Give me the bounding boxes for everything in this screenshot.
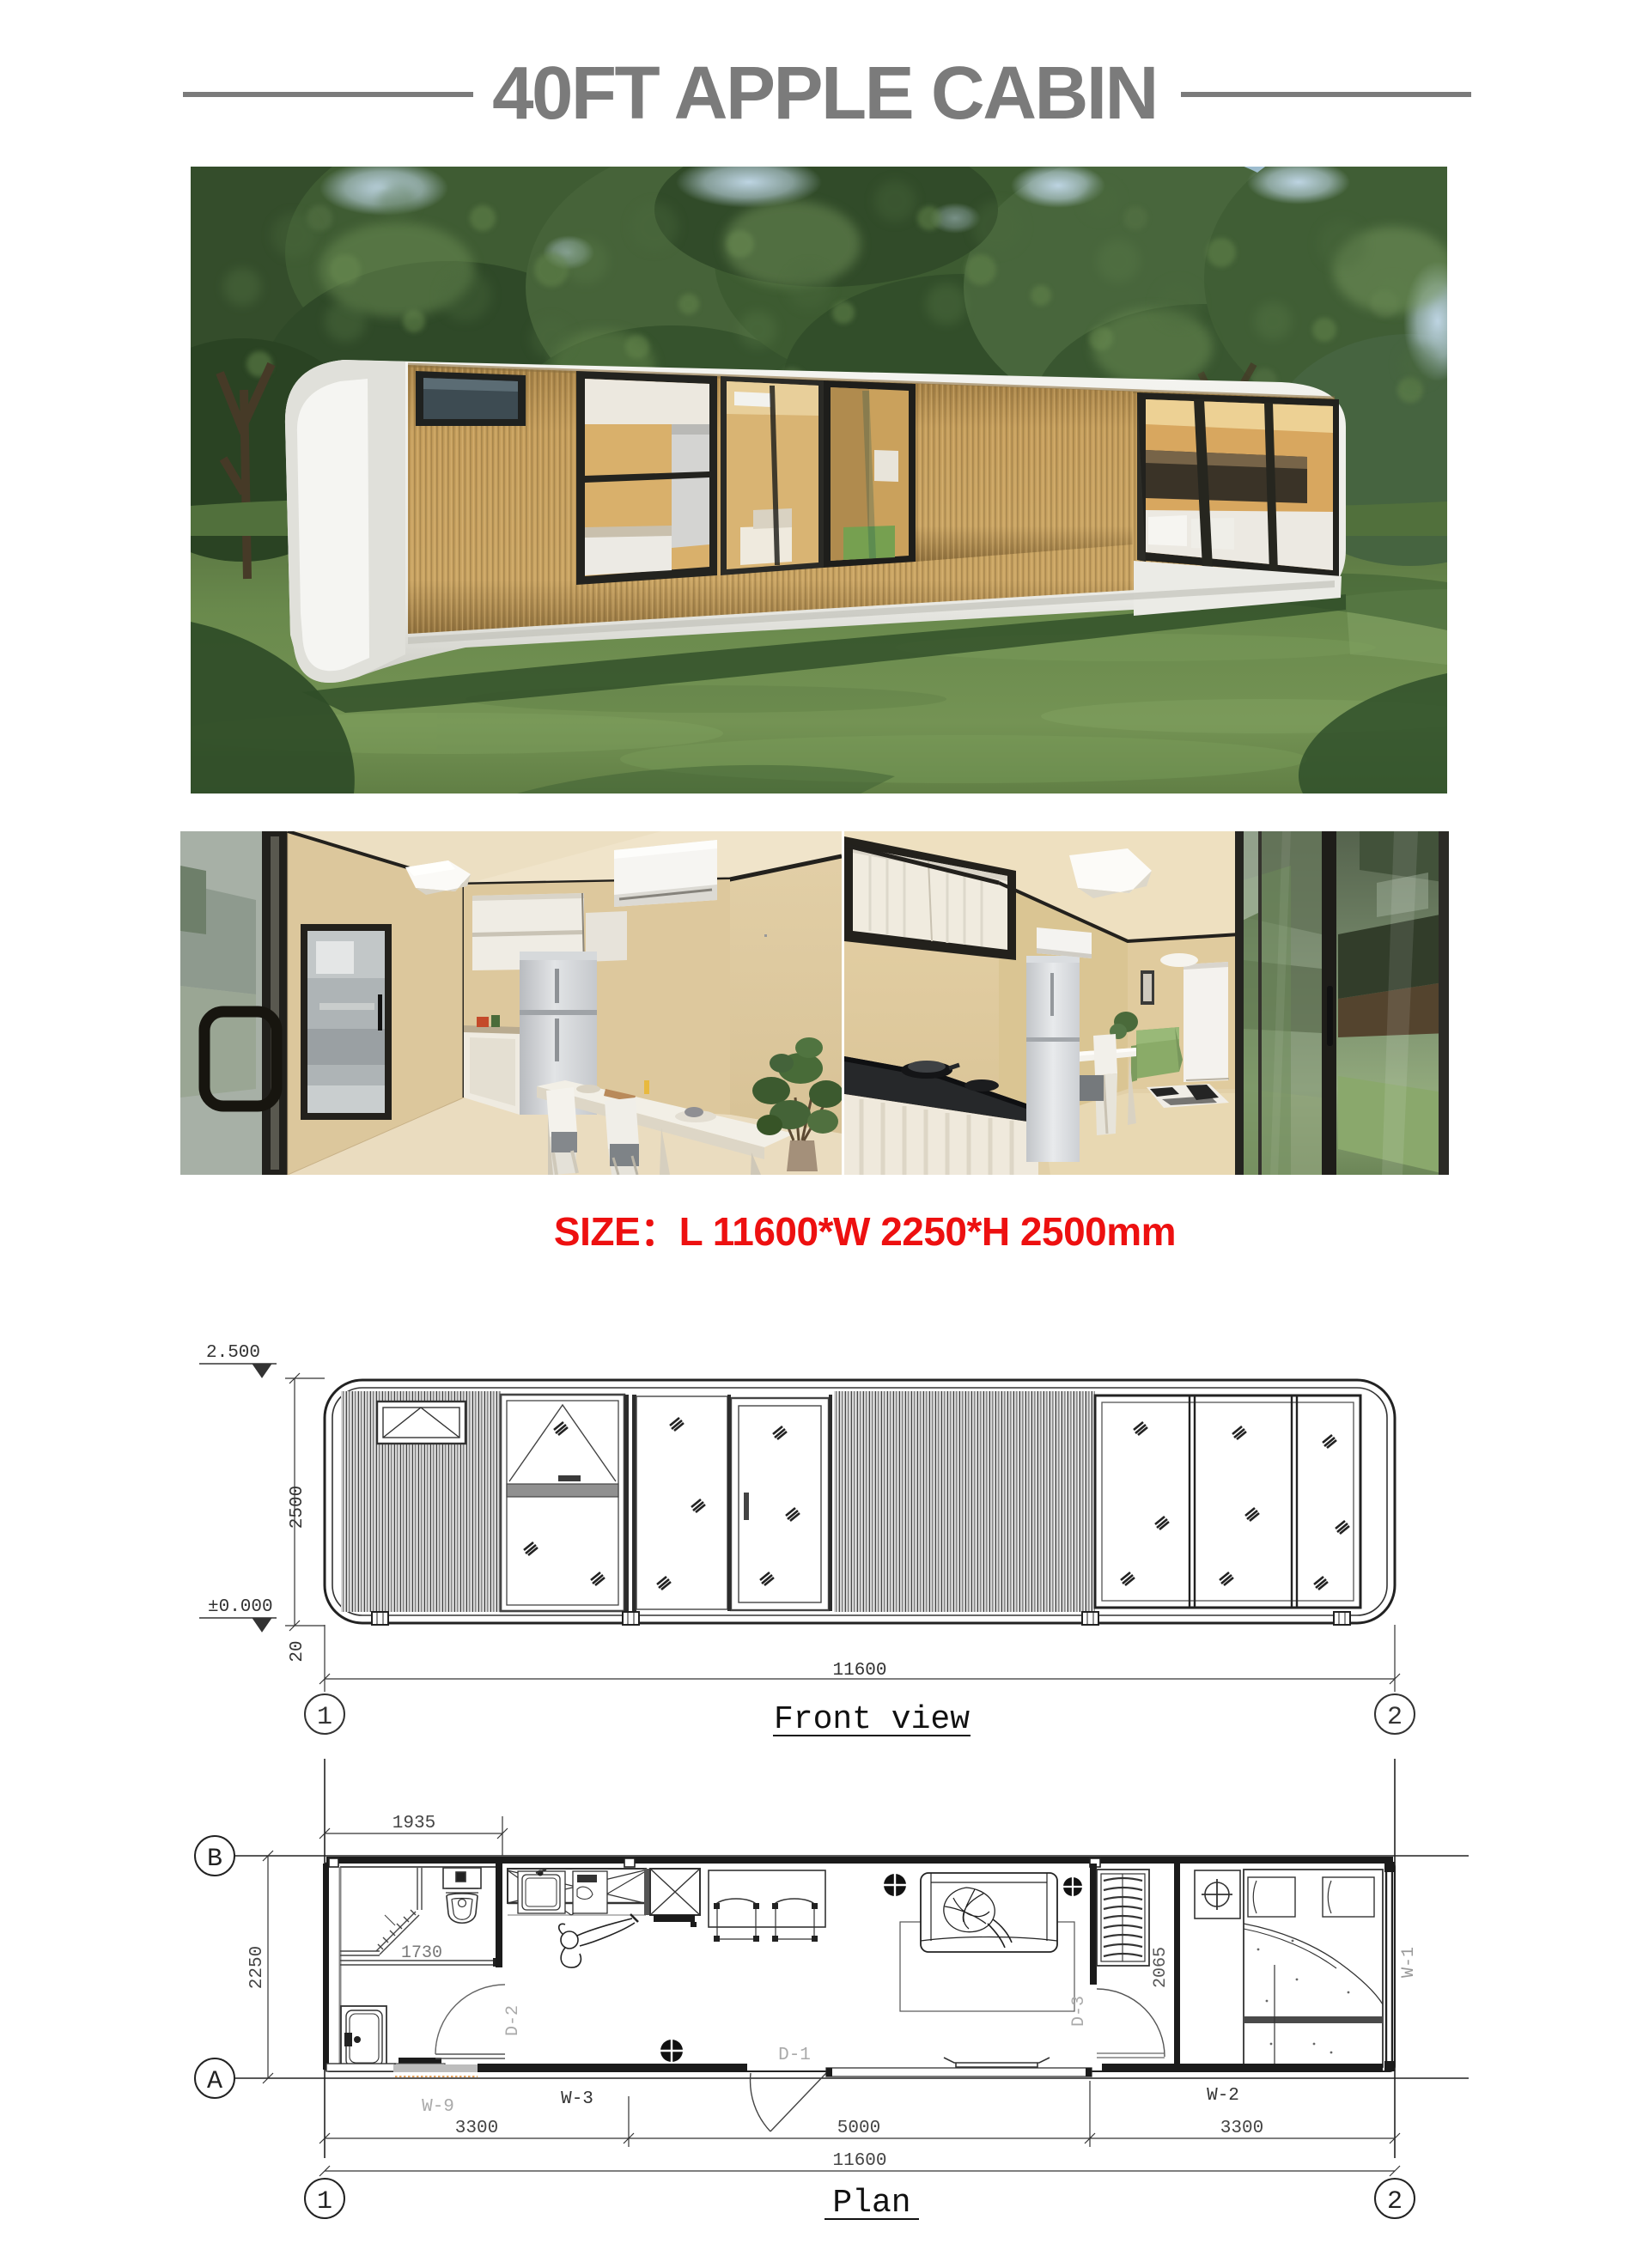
svg-text:2250: 2250 <box>247 1946 267 1989</box>
svg-text:11600: 11600 <box>832 2151 886 2171</box>
svg-text:2065: 2065 <box>1151 1947 1171 1988</box>
svg-text:2: 2 <box>1387 1703 1403 1732</box>
svg-text:W-1: W-1 <box>1399 1947 1419 1978</box>
svg-text:3300: 3300 <box>1220 2119 1263 2138</box>
svg-text:D-3: D-3 <box>1069 1996 1089 2027</box>
svg-text:±0.000: ±0.000 <box>208 1597 273 1617</box>
svg-text:D-1: D-1 <box>778 2046 811 2065</box>
svg-text:5000: 5000 <box>837 2119 880 2138</box>
svg-text:1: 1 <box>317 2187 332 2216</box>
svg-text:2500: 2500 <box>288 1486 307 1529</box>
svg-text:11600: 11600 <box>832 1661 886 1681</box>
svg-text:W-3: W-3 <box>561 2089 593 2109</box>
svg-text:W-9: W-9 <box>422 2097 454 2117</box>
svg-text:B: B <box>207 1845 222 1874</box>
svg-text:1935: 1935 <box>392 1814 435 1833</box>
svg-text:A: A <box>207 2067 222 2096</box>
svg-text:D-2: D-2 <box>503 2005 523 2036</box>
svg-text:2: 2 <box>1387 2187 1403 2216</box>
svg-text:20: 20 <box>288 1640 307 1662</box>
svg-text:1: 1 <box>317 1703 332 1732</box>
svg-text:3300: 3300 <box>455 2119 498 2138</box>
svg-text:Plan: Plan <box>832 2185 910 2222</box>
svg-text:2.500: 2.500 <box>206 1343 260 1363</box>
svg-text:Front view: Front view <box>774 1701 970 1738</box>
svg-text:W-2: W-2 <box>1207 2086 1239 2106</box>
